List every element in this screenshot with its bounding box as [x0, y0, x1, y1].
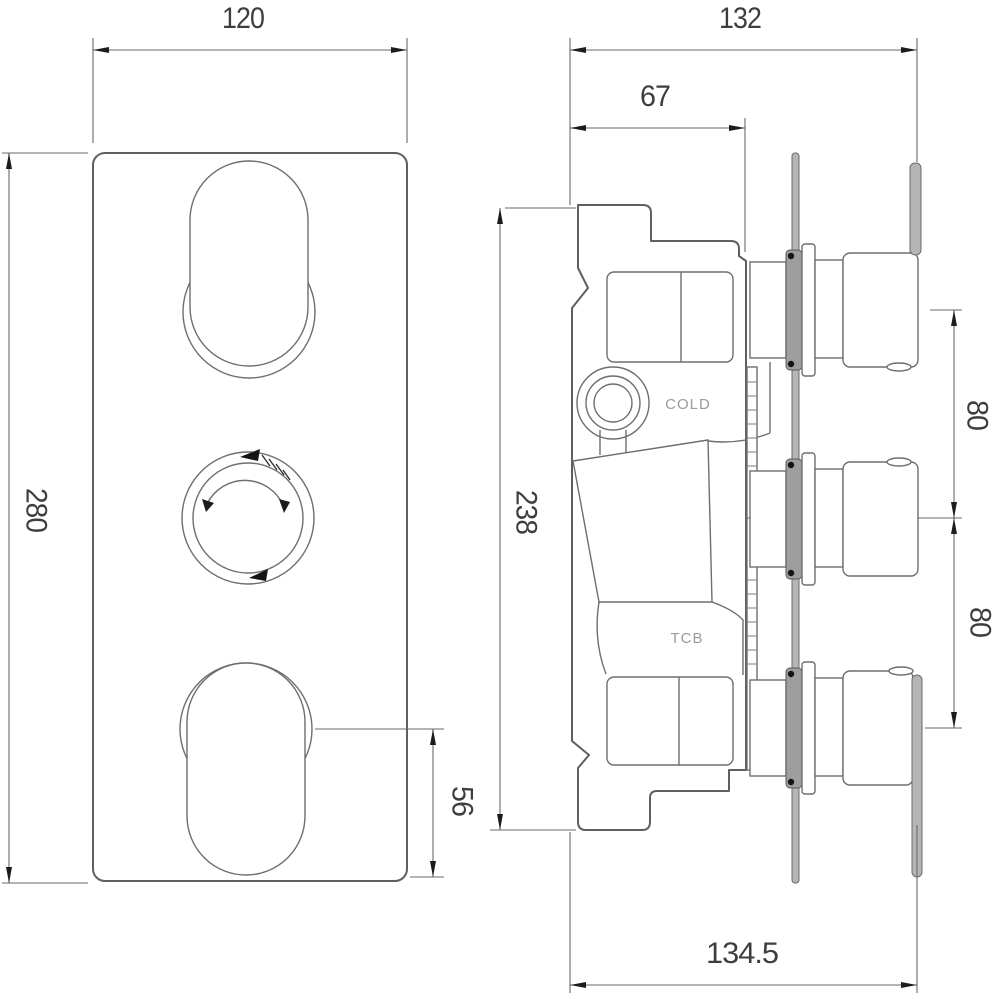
technical-drawing-canvas: 120 280 56 [0, 0, 1000, 1000]
bottom-escutcheon [786, 668, 802, 788]
valve-drawing: 120 280 56 [0, 0, 1000, 1000]
dim-plate-height: 280 [2, 153, 88, 883]
upper-cartridge-block [607, 272, 733, 362]
lower-cartridge-block [607, 677, 733, 765]
dim-label-body-height: 238 [510, 490, 543, 534]
middle-handle-boss [887, 458, 911, 466]
dim-plate-width: 120 [93, 2, 407, 143]
bottom-handle-body [843, 671, 913, 785]
dim-handle-spacing-upper: 80 [930, 310, 994, 518]
middle-handle-assembly [745, 453, 962, 585]
top-handle-collar [815, 260, 843, 358]
middle-escutcheon-screw-lower [788, 570, 794, 576]
middle-handle-body [843, 462, 918, 576]
dim-label-body-depth: 67 [640, 80, 670, 113]
top-escutcheon-screw-upper [788, 253, 794, 259]
tcb-port-label: TCB [671, 630, 704, 647]
top-handle-body [843, 253, 918, 367]
bottom-knob [180, 663, 312, 875]
bottom-handle-lever-boss [889, 667, 913, 675]
dim-label-total-projection: 134.5 [706, 937, 778, 970]
top-knob [183, 161, 315, 378]
top-handle-lever-boss [887, 363, 911, 371]
top-knob-handle [190, 161, 308, 366]
top-escutcheon [786, 250, 802, 370]
middle-handle-collar [815, 469, 843, 567]
dim-label-plate-width: 120 [222, 2, 264, 35]
middle-bonnet [750, 471, 786, 567]
cold-port-label: COLD [665, 396, 711, 413]
dim-label-spacing-upper: 80 [961, 400, 994, 430]
dial-outer-ring [182, 452, 314, 584]
middle-escutcheon [786, 459, 802, 579]
side-view: COLD TCB [490, 2, 997, 993]
bottom-escutcheon-flange [802, 662, 815, 794]
dim-handle-spacing-lower: 80 [925, 518, 997, 728]
dim-label-spacing-lower: 80 [964, 607, 997, 637]
middle-escutcheon-screw-upper [788, 462, 794, 468]
middle-escutcheon-flange [802, 453, 815, 585]
top-handle-assembly [750, 163, 921, 376]
bottom-handle-assembly [750, 662, 922, 877]
dim-body-height: 238 [490, 208, 576, 830]
dim-label-knob-to-bottom: 56 [446, 786, 479, 816]
top-escutcheon-screw-lower [788, 361, 794, 367]
dim-label-depth-overall: 132 [719, 2, 761, 35]
bottom-bonnet [750, 680, 786, 776]
dim-total-projection: 134.5 [570, 825, 917, 993]
bottom-knob-handle [187, 663, 305, 875]
front-view: 120 280 56 [2, 2, 479, 883]
dim-depth-overall: 132 [570, 2, 917, 205]
dim-label-plate-height: 280 [20, 488, 53, 532]
bottom-escutcheon-screw-upper [788, 671, 794, 677]
top-handle-lever [910, 163, 921, 255]
top-bonnet [750, 262, 786, 358]
bottom-escutcheon-screw-lower [788, 779, 794, 785]
top-escutcheon-flange [802, 244, 815, 376]
bottom-handle-collar [815, 678, 843, 776]
